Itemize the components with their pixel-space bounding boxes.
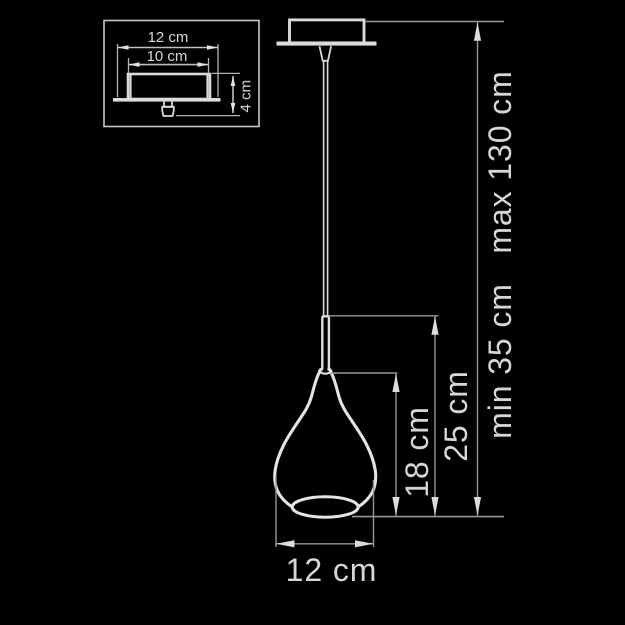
svg-text:4 cm: 4 cm xyxy=(238,80,255,113)
svg-text:min 35 cm: min 35 cm xyxy=(482,283,518,439)
svg-text:10 cm: 10 cm xyxy=(147,48,188,65)
svg-text:12 cm: 12 cm xyxy=(286,552,378,588)
svg-text:max 130 cm: max 130 cm xyxy=(482,70,518,253)
svg-text:12 cm: 12 cm xyxy=(148,29,189,46)
svg-text:25 cm: 25 cm xyxy=(438,370,474,462)
svg-text:18 cm: 18 cm xyxy=(399,406,435,498)
